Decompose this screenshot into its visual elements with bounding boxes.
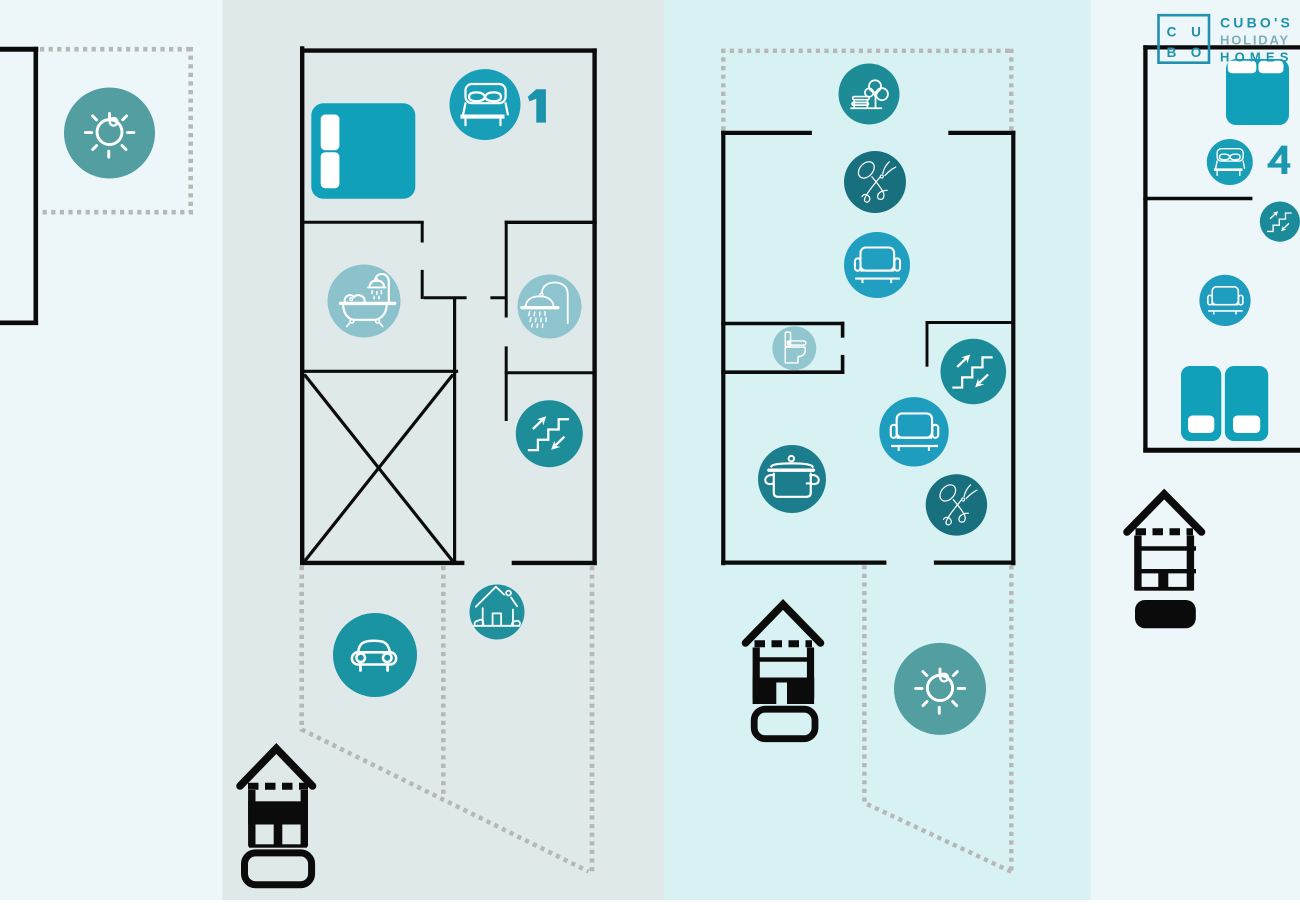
svg-text:C: C <box>1167 25 1177 40</box>
svg-text:U: U <box>1191 25 1201 40</box>
svg-text:B: B <box>1167 45 1177 60</box>
svg-text:CUBO'S: CUBO'S <box>1220 14 1293 30</box>
svg-text:HOMES: HOMES <box>1220 49 1294 64</box>
svg-text:O: O <box>1191 45 1202 60</box>
svg-text:HOLIDAY: HOLIDAY <box>1220 33 1290 48</box>
